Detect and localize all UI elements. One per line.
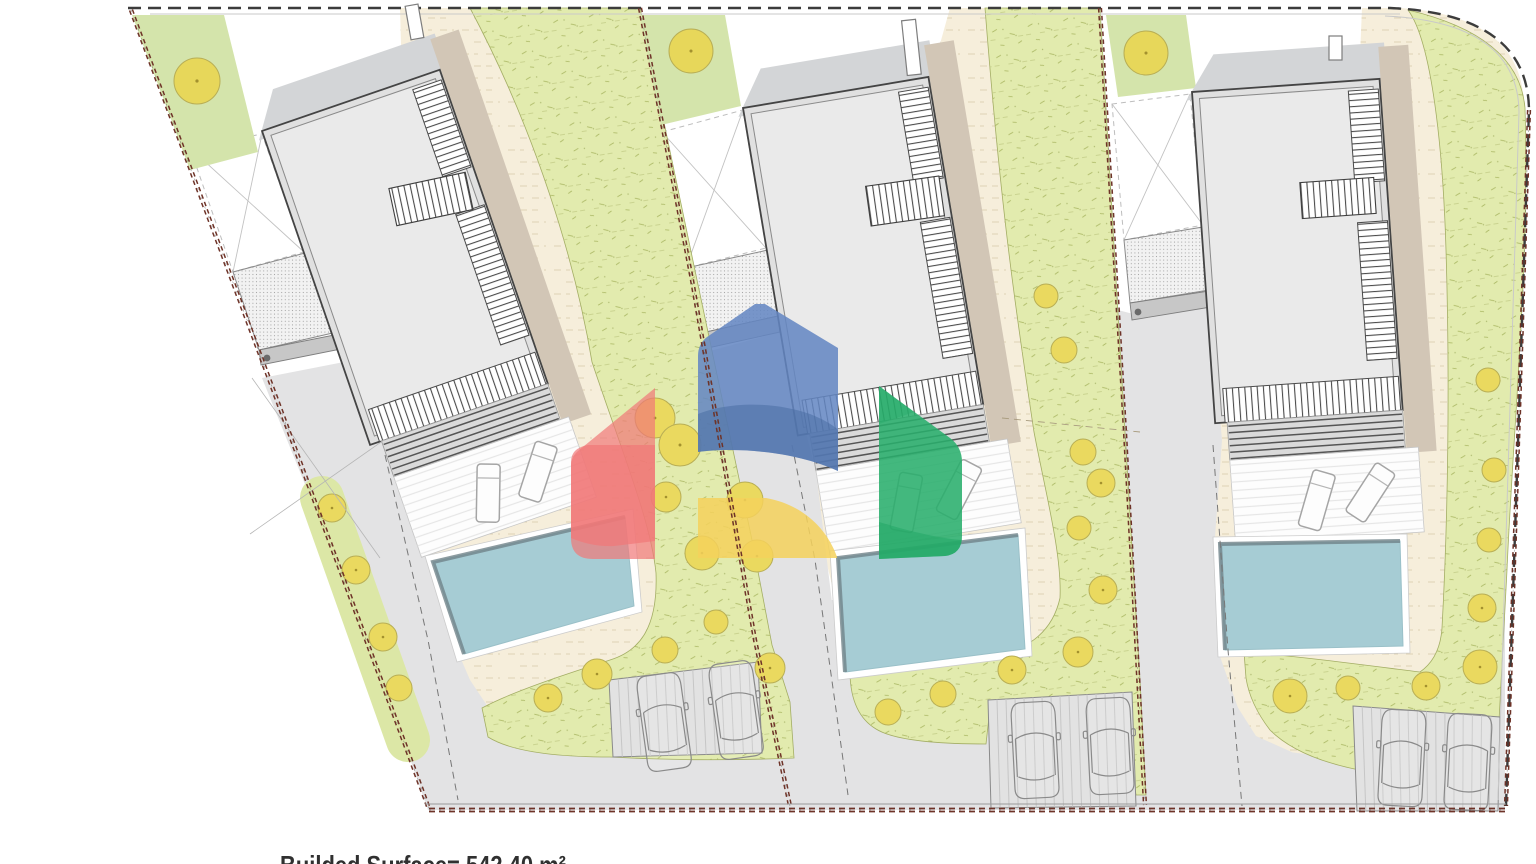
svg-text:Builded Surface= 542.40 m²: Builded Surface= 542.40 m² (280, 850, 566, 864)
